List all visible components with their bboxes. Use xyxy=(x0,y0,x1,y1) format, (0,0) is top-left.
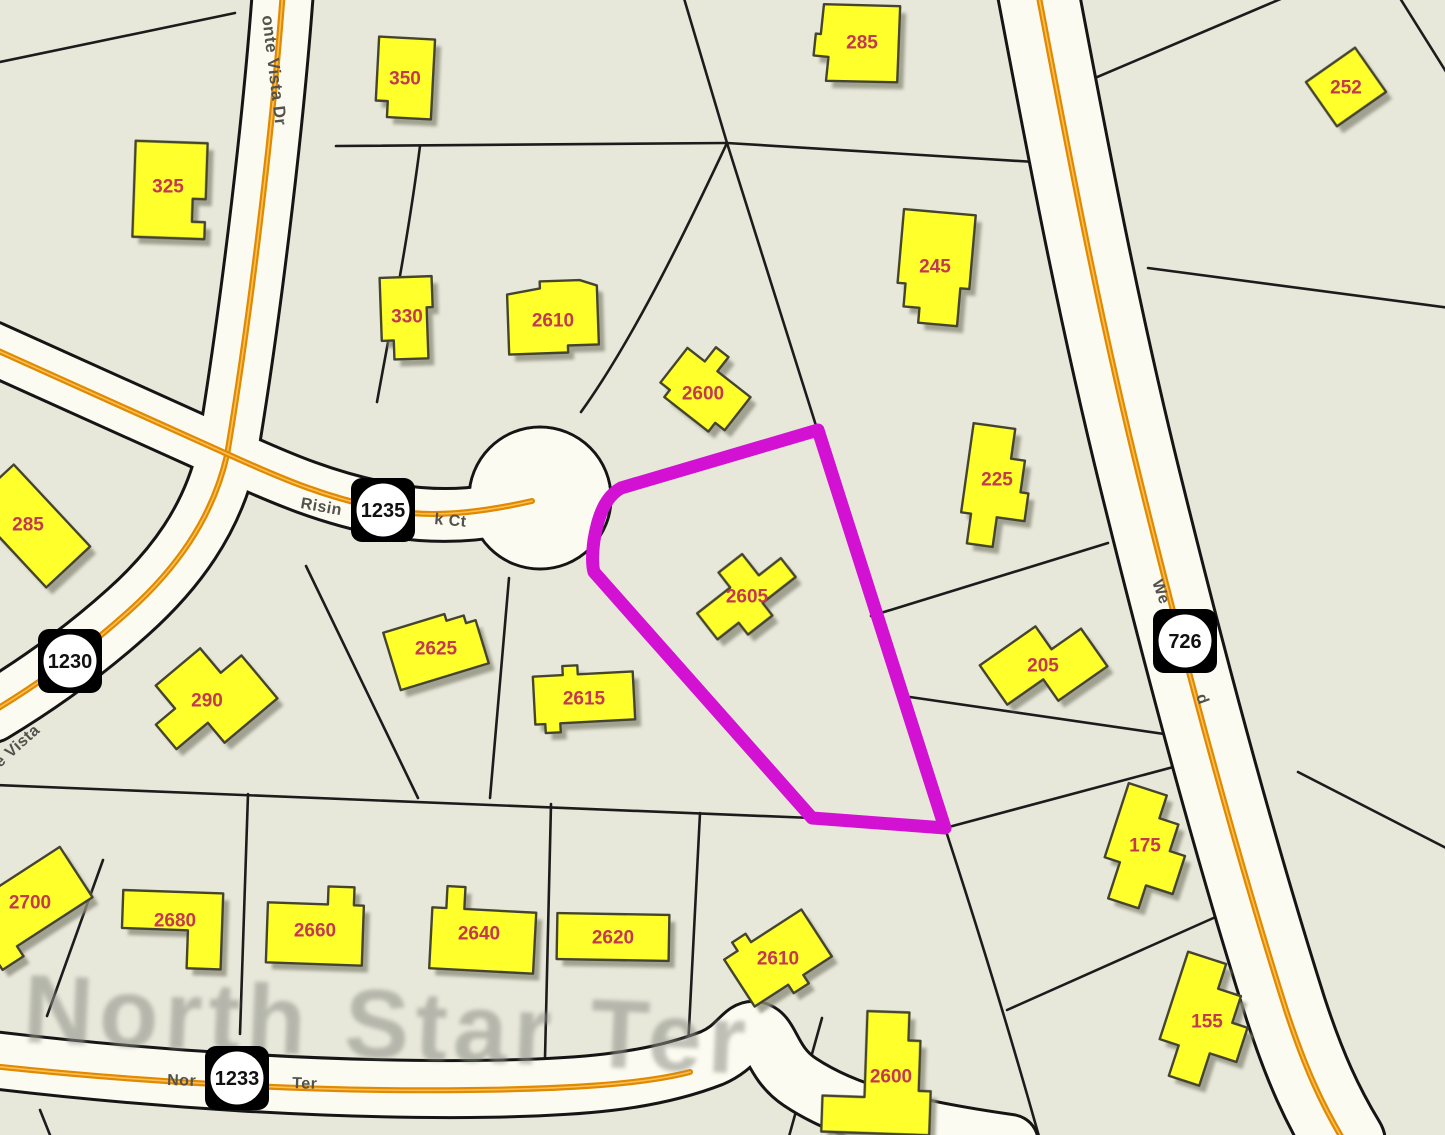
building-number-label: 2700 xyxy=(9,893,51,914)
building-number-label: 2605 xyxy=(726,587,769,608)
building-number-label: 2680 xyxy=(154,911,196,932)
route-shield-number: 1235 xyxy=(361,500,406,522)
building-number-label: 2615 xyxy=(563,689,606,710)
building-number-label: 350 xyxy=(389,69,421,90)
building-number-label: 290 xyxy=(191,691,223,712)
building-number-label: 285 xyxy=(12,515,44,536)
building-number-label: 2625 xyxy=(415,639,458,660)
building-number-label: 155 xyxy=(1191,1012,1223,1033)
building-number-label: 2660 xyxy=(294,921,336,942)
street-name-label: k Ct xyxy=(434,511,468,531)
map-canvas[interactable]: North Star Ter35032533026102600285245252… xyxy=(0,0,1445,1135)
route-shield: 1233 xyxy=(205,1046,269,1110)
building-number-label: 205 xyxy=(1027,656,1059,677)
building-number-label: 2610 xyxy=(757,949,799,970)
building-number-label: 245 xyxy=(919,257,951,278)
building-number-label: 225 xyxy=(981,470,1013,491)
building-number-label: 285 xyxy=(846,33,878,54)
building-number-label: 325 xyxy=(152,177,184,198)
route-shield: 1235 xyxy=(351,478,415,542)
building-number-label: 2620 xyxy=(592,928,634,949)
street-name-label: Ter xyxy=(292,1075,318,1093)
route-shield-number: 1230 xyxy=(48,651,93,673)
street-name-label: Nor xyxy=(167,1072,197,1090)
building-number-label: 2640 xyxy=(458,924,500,945)
route-shield-number: 726 xyxy=(1168,631,1201,653)
route-shield: 726 xyxy=(1153,609,1217,673)
building-number-label: 2600 xyxy=(682,384,724,405)
building-number-label: 2600 xyxy=(870,1067,912,1088)
route-shield: 1230 xyxy=(38,629,102,693)
building-number-label: 2610 xyxy=(532,311,574,332)
building-number-label: 330 xyxy=(391,307,423,328)
parcel-map-viewport[interactable]: North Star Ter35032533026102600285245252… xyxy=(0,0,1445,1135)
building-number-label: 252 xyxy=(1330,78,1362,99)
route-shield-number: 1233 xyxy=(215,1068,260,1090)
building-number-label: 175 xyxy=(1129,836,1161,857)
